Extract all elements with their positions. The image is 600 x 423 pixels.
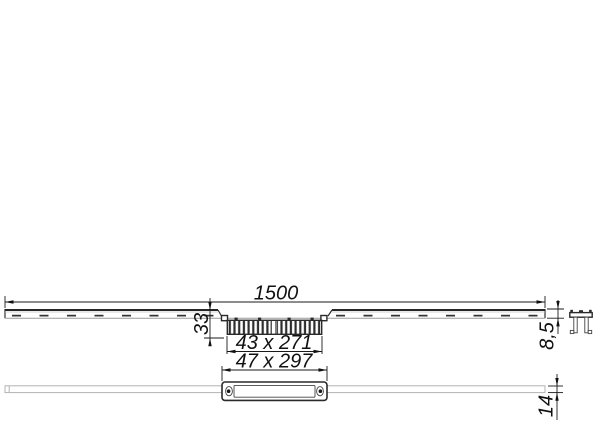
dim-length: 1500 xyxy=(5,283,545,309)
dim-grate-arrow-left xyxy=(227,350,236,353)
screw-left xyxy=(226,387,233,396)
screw-left-dot xyxy=(227,389,231,393)
screw-right-dot xyxy=(319,389,323,393)
profile-leg-right xyxy=(585,317,588,333)
bottom-view xyxy=(5,382,545,400)
dim-frame-label: 47 x 297 xyxy=(236,351,314,373)
dim-body-arrow-top xyxy=(555,378,558,386)
drawing-canvas: 1500 33 43 x 271 47 x 297 8,5 xyxy=(0,0,600,423)
dim-length-arrow-left xyxy=(5,300,14,303)
side-view xyxy=(5,309,545,334)
profile-detail xyxy=(570,310,592,334)
profile-top-bar xyxy=(570,313,592,318)
grate-recess xyxy=(218,310,332,334)
profile-foot-left xyxy=(570,330,574,333)
profile-foot-right xyxy=(588,330,592,333)
dim-frame-arrow-left xyxy=(222,368,231,371)
dim-body-label: 14 xyxy=(536,395,558,417)
profile-leg-left xyxy=(574,317,577,333)
dim-frame: 47 x 297 xyxy=(222,351,327,382)
dim-depth-label: 33 xyxy=(191,313,213,335)
screw-right xyxy=(317,387,324,396)
dim-body-height: 14 xyxy=(536,374,564,420)
dim-depth: 33 xyxy=(191,298,224,346)
dim-length-label: 1500 xyxy=(254,283,299,305)
dim-depth-arrow-top xyxy=(208,302,211,310)
dim-length-arrow-right xyxy=(537,300,546,303)
dim-height-label: 8,5 xyxy=(537,321,559,350)
dim-height-arrow-top xyxy=(556,301,559,309)
dim-frame-arrow-right xyxy=(319,368,328,371)
dim-depth-arrow-bottom xyxy=(208,338,211,346)
dim-profile-height: 8,5 xyxy=(537,300,565,350)
technical-drawing: 1500 33 43 x 271 47 x 297 8,5 xyxy=(0,0,600,423)
recess-step-right xyxy=(328,310,332,316)
dim-grate-arrow-right xyxy=(314,350,323,353)
